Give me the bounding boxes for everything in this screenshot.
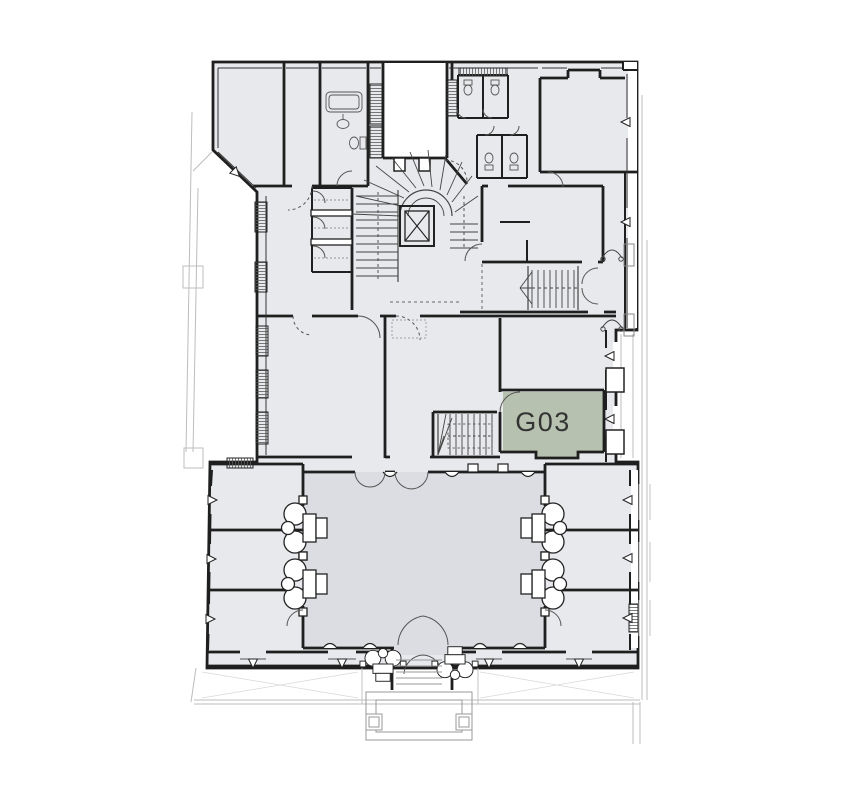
floor-plan-svg: G03 — [0, 0, 850, 800]
lightwell — [383, 63, 447, 158]
unit-g03[interactable]: G03 — [503, 392, 603, 458]
entrance-platform — [366, 692, 472, 740]
great-hall-floor — [303, 472, 545, 655]
unit-g03-label: G03 — [515, 407, 571, 437]
floor-plan-canvas: G03 — [0, 0, 850, 800]
